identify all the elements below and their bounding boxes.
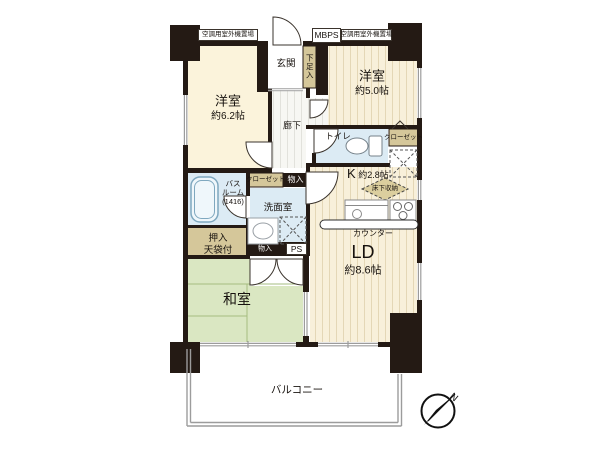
kitchen-label: K 約2.8帖 (347, 167, 389, 180)
balcony-label: バルコニー (271, 385, 323, 396)
west1-name-label: 洋室 (215, 95, 241, 108)
west1-size-label: 約6.2帖 (211, 112, 245, 122)
aircon-space-left-label: 空調用室外機置場 (198, 29, 258, 41)
pillar-bottom-right (390, 313, 422, 373)
floorplan-graphic: N (0, 0, 600, 450)
shoebox-label: 下足入 (303, 47, 316, 87)
entrance-door-arc (273, 17, 301, 45)
counter-label: カウンター (353, 230, 393, 238)
ps-label: PS (286, 243, 307, 255)
washitsu-label: 和室 (223, 292, 251, 306)
kitchen-name: K (347, 166, 356, 181)
toilet-icon (369, 136, 382, 156)
ld-size-label: 約8.6帖 (344, 266, 381, 277)
ld-name-label: LD (351, 243, 374, 261)
underfloor-storage-label: 床下収納 (372, 186, 398, 193)
aircon-space-right-label: 空調用室外機置場 (341, 29, 392, 41)
mbps-label: MBPS (312, 28, 341, 43)
counter-ledge (320, 220, 418, 229)
west2-name-label: 洋室 (359, 70, 385, 83)
washroom-label: 洗面室 (264, 203, 293, 213)
kitchen-sink-icon (345, 200, 388, 222)
pillar-top-right (388, 23, 422, 61)
oshiire-label: 押入 天袋付 (204, 233, 233, 257)
bathroom-label: バス ルーム (1416) (218, 179, 248, 206)
toilet-label: トイレ (325, 132, 351, 141)
compass: N (422, 391, 460, 427)
storage-lower-label: 物入 (258, 246, 272, 253)
west2-size-label: 約5.0帖 (355, 87, 389, 97)
stove-icon (390, 200, 416, 222)
hallway-label: 廊下 (283, 122, 301, 131)
closet-west2-label: クローゼット (384, 134, 423, 141)
closet-hall-label: クローゼット (246, 177, 285, 184)
storage-hall-label: 物入 (288, 176, 304, 184)
floorplan-page: N 空調用室外機置場 空調用室外機置場 MBPS 玄関 下足入 洋室 約6.2帖… (0, 0, 600, 450)
genkan-label: 玄関 (276, 59, 295, 69)
kitchen-size: 約2.8帖 (358, 170, 389, 180)
